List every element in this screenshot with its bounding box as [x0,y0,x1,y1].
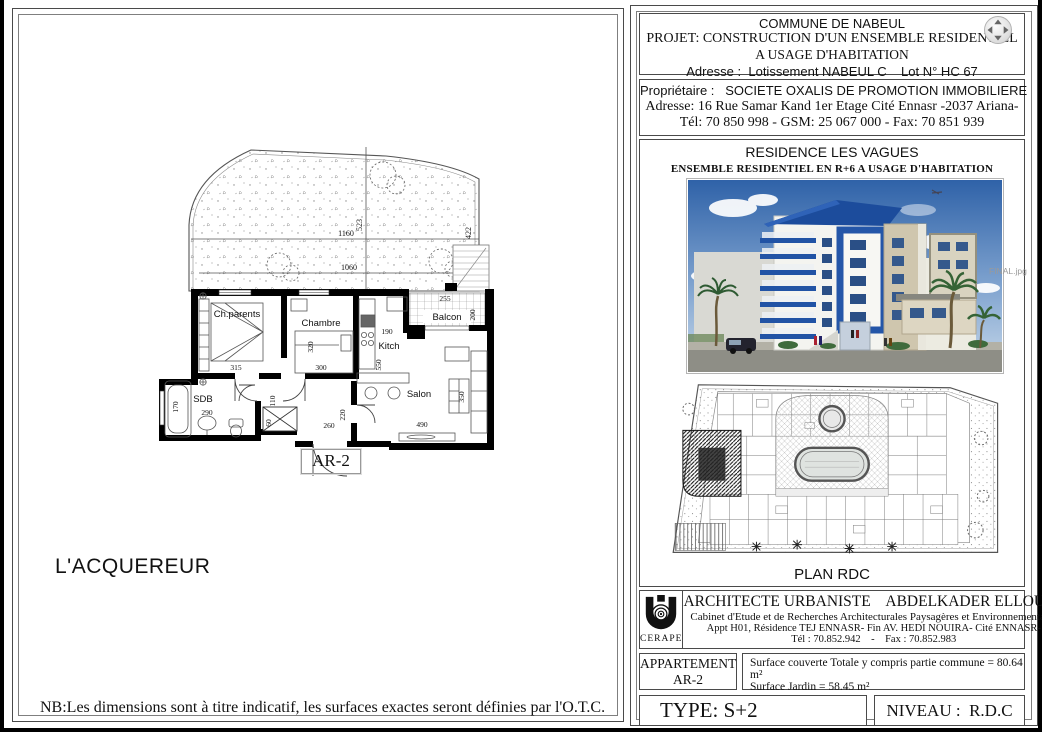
dim-260: 260 [323,421,335,430]
apartment-box: APPARTEMENT AR-2 [639,653,737,690]
owner-address: Adresse: 16 Rue Samar Kand 1er Etage Cit… [640,99,1024,115]
document-page: 1160 1060 523 422 [4,0,1038,728]
architect-address: Appt H01, Résidence TEJ ENNASR- Fin AV. … [683,623,1042,634]
residence-title: RESIDENCE LES VAGUES [640,144,1024,160]
owner-phone: Tél: 70 850 998 - GSM: 25 067 000 - Fax:… [640,115,1024,131]
dim-320: 320 [306,341,315,353]
dim-550: 550 [374,359,383,371]
cerape-logo-label: CERAPE [640,634,682,644]
dim-1160: 1160 [338,229,354,238]
architect-logo-cell: CERAPE [640,591,683,648]
apartment-code: AR-2 [640,672,736,688]
project-address: Adresse : Lotissement NABEUL C Lot N° HC… [640,64,1024,79]
apartment-tag: AR-2 [301,449,361,474]
architect-text: ARCHITECTE URBANISTE ABDELKADER ELLOUZE … [683,591,1042,648]
dim-110: 110 [268,395,277,406]
dim-220: 220 [338,409,347,421]
surface-total: Surface couverte Totale y compris partie… [750,657,1024,681]
dim-523: 523 [355,219,364,231]
dim-170: 170 [171,401,180,413]
tv-console [399,433,455,441]
dim-350: 350 [457,391,466,403]
label-kitch: Kitch [378,341,399,352]
architect-cabinet: Cabinet d'Etude et de Recherches Archite… [683,611,1042,623]
dim-300: 300 [315,363,327,372]
sink [198,416,216,435]
project-line2: A USAGE D'HABITATION [640,47,1024,63]
project-line1: PROJET: CONSTRUCTION D'UN ENSEMBLE RESID… [640,31,1024,47]
garden-stairs [453,245,489,291]
building-render-image [688,180,1002,372]
toilet [229,419,243,437]
owner-name: Propriétaire : SOCIETE OXALIS DE PROMOTI… [640,83,1024,98]
siteplan-caption: PLAN RDC [640,566,1024,583]
dim-290: 290 [201,408,213,417]
dim-60: 60 [264,419,273,427]
acquirer-label: L'ACQUEREUR [55,555,210,579]
label-ch-parents: Ch.parents [214,309,261,320]
dim-255: 255 [439,294,451,303]
label-salon: Salon [407,389,431,400]
dim-422: 422 [464,227,473,239]
apartment-word: APPARTEMENT [640,656,736,672]
drawing-viewer: { "page": { "plan": { "label": "AR-2", "… [0,0,1042,732]
garden-area: 1160 1060 523 422 [189,147,489,291]
render-filename: FINAL.jpg [989,266,1027,276]
cerape-logo-icon [640,595,682,633]
type-box: TYPE: S+2 [639,695,867,726]
commune-title: COMMUNE DE NABEUL [640,16,1024,31]
residence-subtitle: ENSEMBLE RESIDENTIEL EN R+6 A USAGE D'HA… [640,163,1024,175]
label-chambre: Chambre [301,318,340,329]
dim-200: 200 [468,309,477,321]
entrance [840,322,870,350]
level-box: NIVEAU : R.D.C [874,695,1025,726]
architect-name: ARCHITECTE URBANISTE ABDELKADER ELLOUZE [683,593,1042,611]
wardrobe [199,299,209,371]
site-plan [654,380,1010,564]
building-render [686,178,1004,374]
label-sdb: SDB [193,394,213,405]
residence-box: RESIDENCE LES VAGUES ENSEMBLE RESIDENTIE… [639,139,1025,587]
highlighted-unit [683,430,741,496]
project-info-box: COMMUNE DE NABEUL PROJET: CONSTRUCTION D… [639,13,1025,75]
parking-strip [675,523,725,550]
dim-1060: 1060 [341,263,357,272]
label-balcon: Balcon [432,312,461,323]
dimensions-note: NB:Les dimensions sont à titre indicatif… [40,699,605,717]
dim-490: 490 [416,420,428,429]
pan-icon[interactable] [983,15,1013,45]
dim-190: 190 [381,327,393,336]
plan-sheet: 1160 1060 523 422 [12,8,624,722]
architect-phone: Tél : 70.852.942 - Fax : 70.852.983 [683,634,1042,645]
surface-garden: Surface Jardin = 58.45 m² [750,681,1024,693]
sofa [445,347,487,433]
balconies [760,232,816,339]
dim-315: 315 [230,363,242,372]
apartment-floorplan: 1160 1060 523 422 [151,133,521,485]
central-courtyard [776,395,888,496]
architect-box: CERAPE ARCHITECTE URBANISTE ABDELKADER E… [639,590,1025,649]
owner-info-box: Propriétaire : SOCIETE OXALIS DE PROMOTI… [639,79,1025,136]
desk-chambre [291,299,307,311]
road [688,350,1002,372]
surface-box: Surface couverte Totale y compris partie… [742,653,1025,690]
title-block-sheet: COMMUNE DE NABEUL PROJET: CONSTRUCTION D… [630,5,1038,726]
